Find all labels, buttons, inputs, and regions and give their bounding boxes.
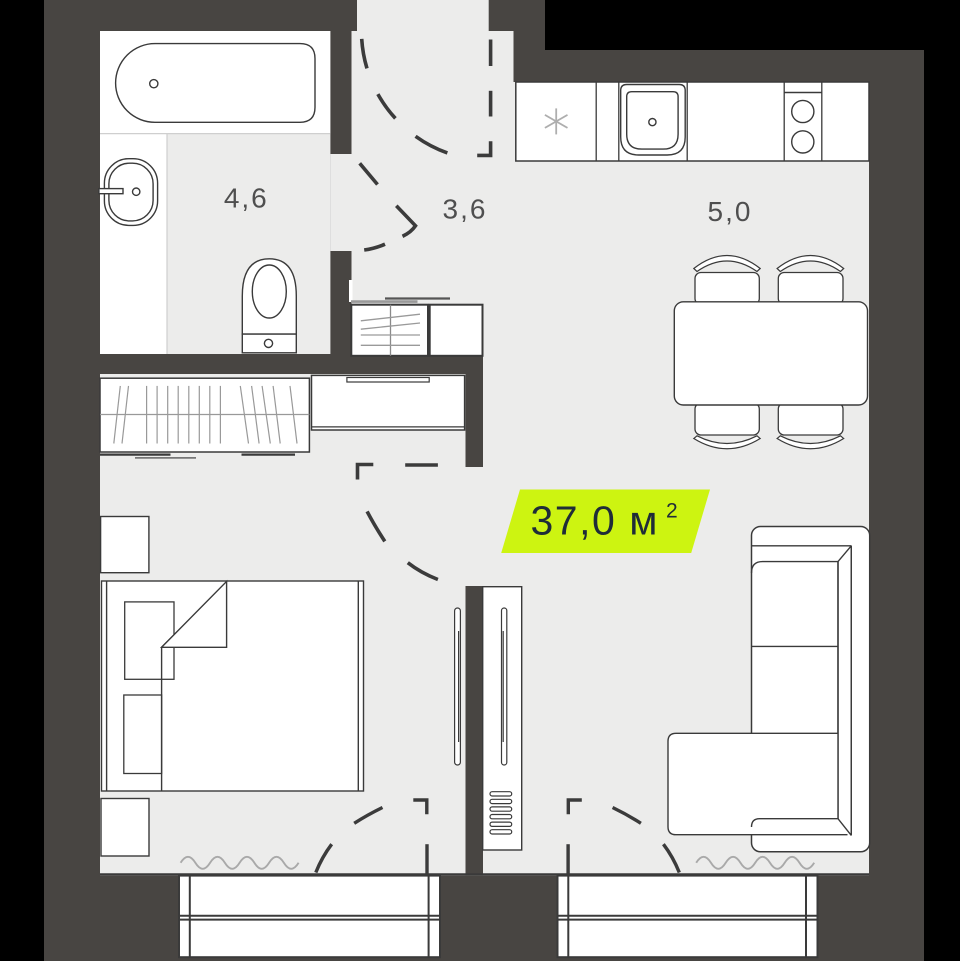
svg-text:3,6: 3,6 <box>443 193 488 224</box>
svg-text:4,6: 4,6 <box>224 182 269 213</box>
svg-text:5,0: 5,0 <box>708 196 753 227</box>
svg-text:2: 2 <box>666 500 678 523</box>
svg-text:37,0 м: 37,0 м <box>531 498 659 544</box>
